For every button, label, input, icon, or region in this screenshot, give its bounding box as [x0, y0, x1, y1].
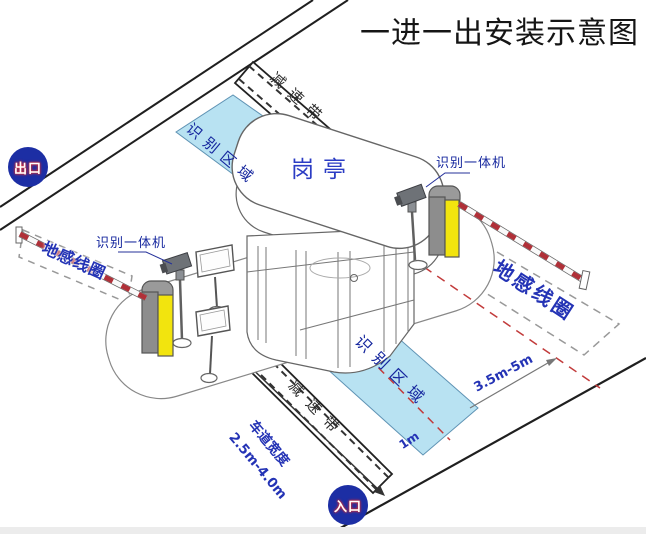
booth-label: 岗亭: [291, 150, 355, 184]
camera-left-label: 识别一体机: [96, 237, 166, 250]
camera-right-label: 识别一体机: [436, 157, 506, 170]
installation-diagram: 一进一出安装示意图 出口 入口 岗亭 识别区域 识别区域 减速带 减速带 地感线…: [0, 0, 646, 534]
booth-body: [247, 228, 414, 373]
barrier-gate-right: [429, 186, 460, 257]
bottom-edge-strip: [0, 527, 646, 534]
barrier-gate-left: [142, 281, 173, 356]
page-title: 一进一出安装示意图: [360, 8, 639, 52]
entrance-badge: 入口: [328, 485, 368, 525]
guard-booth: [222, 103, 459, 373]
exit-badge: 出口: [8, 147, 48, 187]
